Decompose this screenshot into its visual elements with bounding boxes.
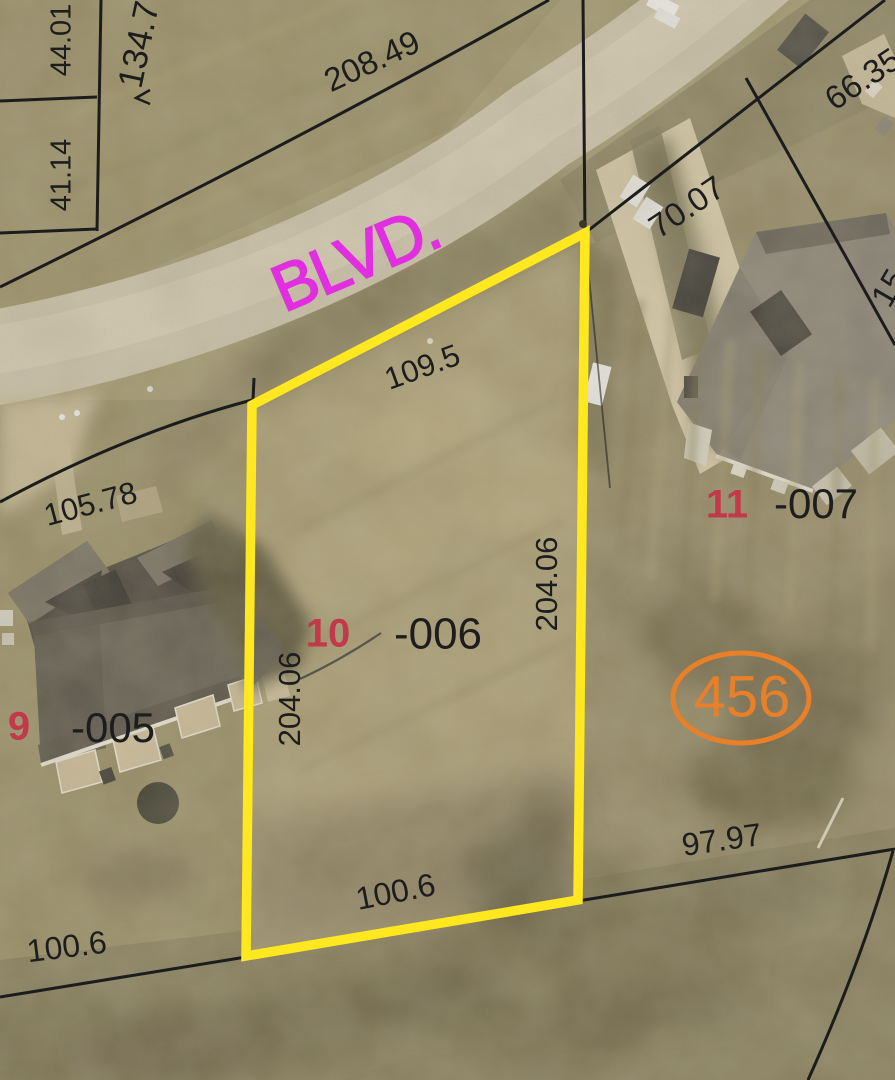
svg-text:456: 456 (694, 664, 791, 729)
svg-text:-007: -007 (774, 480, 858, 527)
svg-text:44.01: 44.01 (46, 4, 78, 77)
svg-text:10: 10 (306, 612, 351, 656)
svg-text:204.06: 204.06 (272, 652, 307, 747)
svg-text:41.14: 41.14 (46, 139, 78, 212)
svg-text:204.06: 204.06 (529, 537, 564, 632)
svg-text:11: 11 (706, 483, 748, 527)
svg-text:9: 9 (8, 705, 30, 749)
svg-text:-006: -006 (394, 610, 482, 659)
svg-text:-005: -005 (71, 704, 155, 751)
